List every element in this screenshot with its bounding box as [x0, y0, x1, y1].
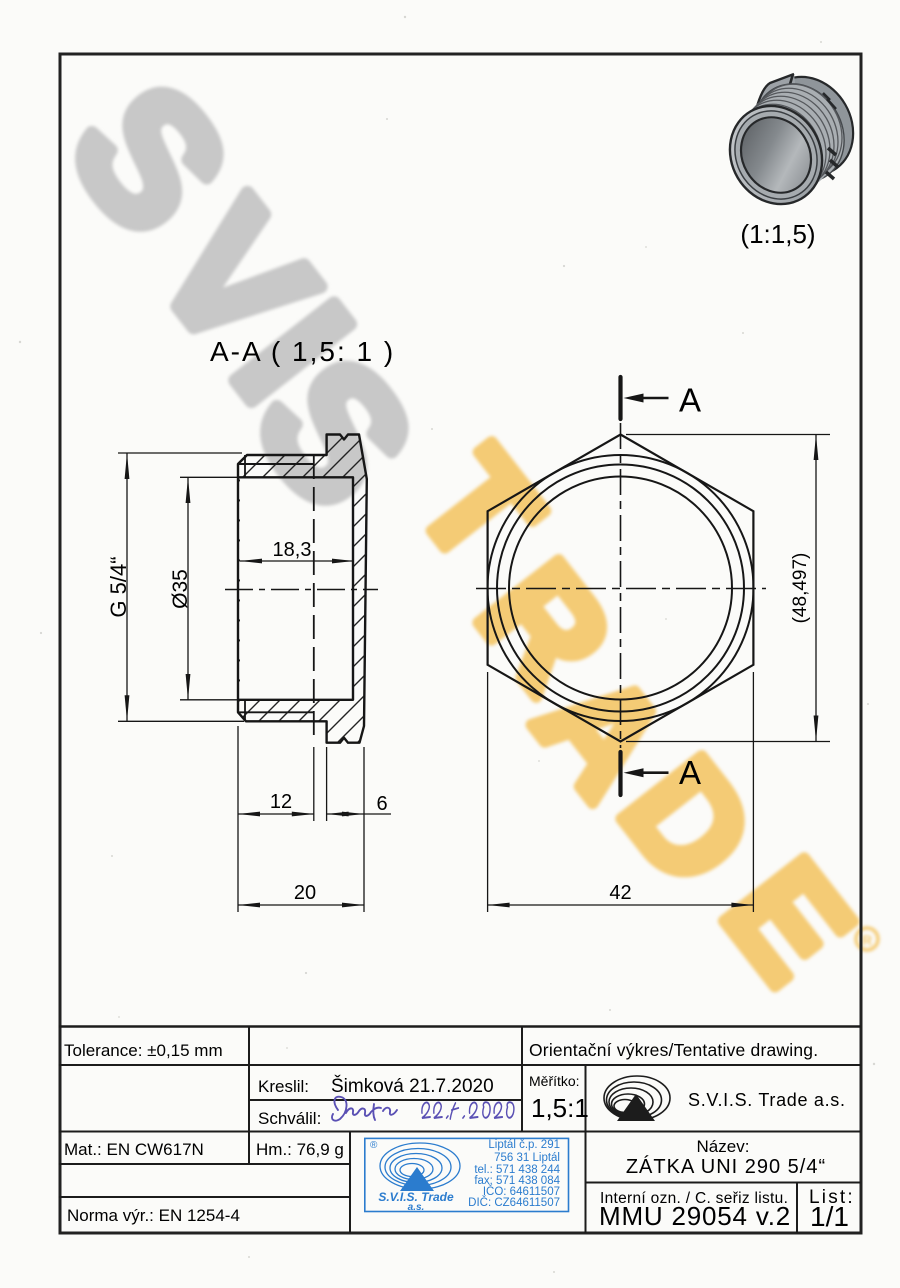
svg-text:MMU 29054 v.2: MMU 29054 v.2	[599, 1201, 791, 1231]
svg-text:Norma výr.: EN 1254-4: Norma výr.: EN 1254-4	[67, 1206, 240, 1225]
svg-text:A: A	[679, 382, 701, 419]
svg-text:Název:: Název:	[697, 1137, 750, 1156]
svg-text:(48,497): (48,497)	[790, 553, 811, 624]
svg-text:S.V.I.S. Trade a.s.: S.V.I.S. Trade a.s.	[688, 1090, 846, 1110]
svg-text:1,5:1: 1,5:1	[531, 1093, 589, 1123]
svg-text:18,3: 18,3	[273, 539, 312, 561]
svg-text:Tolerance: ±0,15 mm: Tolerance: ±0,15 mm	[64, 1041, 223, 1060]
svg-text:1/1: 1/1	[810, 1201, 849, 1232]
svg-text:A: A	[679, 754, 701, 791]
svg-text:Liptál č.p. 291: Liptál č.p. 291	[488, 1139, 560, 1151]
svg-text:Ø35: Ø35	[169, 569, 192, 609]
svg-text:Měřítko:: Měřítko:	[529, 1073, 580, 1089]
svg-text:DIČ: CZ64611507: DIČ: CZ64611507	[468, 1196, 560, 1209]
svg-text:Hm.: 76,9 g: Hm.: 76,9 g	[256, 1140, 344, 1159]
svg-text:Mat.: EN CW617N: Mat.: EN CW617N	[64, 1140, 204, 1159]
svg-text:G 5/4“: G 5/4“	[106, 556, 131, 617]
svg-text:R: R	[862, 932, 872, 948]
svg-text:(1:1,5): (1:1,5)	[740, 219, 815, 249]
svg-text:12: 12	[270, 791, 292, 813]
svg-text:20: 20	[294, 882, 316, 904]
svg-text:6: 6	[376, 793, 387, 815]
svg-text:®: ®	[370, 1140, 378, 1151]
svg-text:Šimková 21.7.2020: Šimková 21.7.2020	[331, 1075, 494, 1097]
svg-text:42: 42	[609, 882, 631, 904]
svg-text:756 31 Liptál: 756 31 Liptál	[494, 1152, 560, 1164]
svg-text:ZÁTKA UNI 290 5/4“: ZÁTKA UNI 290 5/4“	[626, 1155, 826, 1178]
svg-text:Orientační výkres/Tentative dr: Orientační výkres/Tentative drawing.	[529, 1040, 818, 1060]
svg-text:a.s.: a.s.	[408, 1202, 425, 1213]
svg-text:Kreslil:: Kreslil:	[258, 1077, 309, 1096]
svg-text:Schválil:: Schválil:	[258, 1109, 321, 1128]
svg-text:A-A ( 1,5: 1 ): A-A ( 1,5: 1 )	[210, 336, 395, 367]
